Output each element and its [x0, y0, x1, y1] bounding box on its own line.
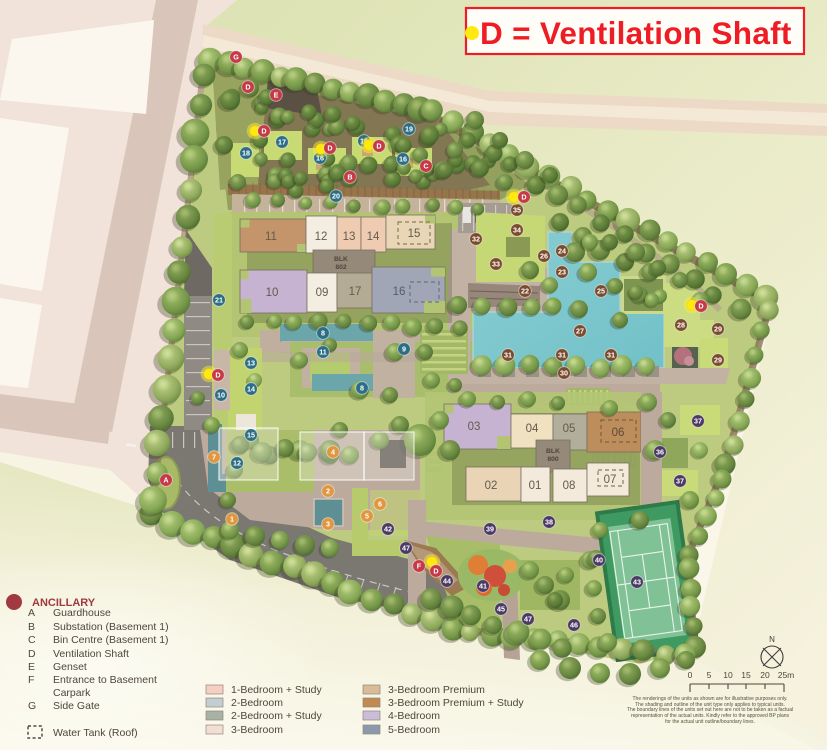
svg-text:35: 35 — [513, 206, 521, 215]
svg-text:26: 26 — [540, 252, 548, 261]
svg-text:07: 07 — [604, 474, 617, 486]
svg-text:Side Gate: Side Gate — [53, 700, 100, 712]
svg-text:Guardhouse: Guardhouse — [53, 607, 111, 619]
svg-text:Genset: Genset — [53, 661, 87, 673]
svg-text:30: 30 — [560, 369, 568, 378]
svg-text:F: F — [417, 562, 422, 571]
svg-text:23: 23 — [558, 268, 566, 277]
svg-text:42: 42 — [384, 525, 392, 534]
svg-text:7: 7 — [212, 453, 216, 462]
svg-text:D: D — [376, 142, 381, 151]
svg-text:12: 12 — [233, 459, 241, 468]
svg-text:9: 9 — [402, 345, 406, 354]
svg-text:3-Bedroom Premium + Study: 3-Bedroom Premium + Study — [388, 697, 524, 709]
svg-text:29: 29 — [714, 325, 722, 334]
svg-text:18: 18 — [242, 149, 250, 158]
svg-text:25m: 25m — [778, 670, 795, 680]
svg-text:10: 10 — [217, 391, 225, 400]
svg-text:D: D — [245, 83, 250, 92]
svg-text:8: 8 — [360, 384, 364, 393]
svg-text:1: 1 — [230, 515, 234, 524]
svg-text:1-Bedroom + Study: 1-Bedroom + Study — [231, 684, 323, 696]
svg-text:E: E — [274, 91, 279, 100]
svg-text:01: 01 — [529, 480, 542, 492]
svg-text:09: 09 — [316, 287, 329, 299]
svg-text:03: 03 — [468, 421, 481, 433]
svg-text:32: 32 — [472, 235, 480, 244]
svg-text:40: 40 — [595, 556, 603, 565]
svg-text:11: 11 — [265, 231, 277, 243]
svg-text:BLK: BLK — [546, 448, 560, 455]
svg-text:0: 0 — [688, 670, 693, 680]
svg-text:36: 36 — [656, 448, 664, 457]
svg-text:06: 06 — [612, 427, 625, 439]
svg-text:5-Bedroom: 5-Bedroom — [388, 724, 440, 736]
svg-text:20: 20 — [332, 192, 340, 201]
svg-text:45: 45 — [497, 605, 505, 614]
svg-text:31: 31 — [558, 351, 566, 360]
svg-text:27: 27 — [576, 327, 584, 336]
svg-text:A: A — [28, 607, 35, 619]
svg-text:Ventilation Shaft: Ventilation Shaft — [53, 648, 129, 660]
svg-text:38: 38 — [545, 518, 553, 527]
svg-text:04: 04 — [526, 423, 539, 435]
svg-text:A: A — [163, 476, 168, 485]
svg-text:C: C — [423, 162, 428, 171]
svg-text:15: 15 — [408, 228, 421, 240]
svg-text:47: 47 — [524, 615, 532, 624]
svg-text:C: C — [28, 634, 36, 646]
svg-text:31: 31 — [504, 351, 512, 360]
svg-text:17: 17 — [278, 138, 286, 147]
svg-text:2: 2 — [326, 487, 330, 496]
svg-text:3-Bedroom Premium: 3-Bedroom Premium — [388, 684, 485, 696]
svg-text:20: 20 — [760, 670, 770, 680]
svg-text:8: 8 — [321, 329, 325, 338]
svg-text:22: 22 — [521, 287, 529, 296]
svg-text:17: 17 — [349, 286, 362, 298]
svg-text:34: 34 — [513, 226, 521, 235]
svg-text:47: 47 — [402, 544, 410, 553]
svg-text:B: B — [28, 621, 35, 633]
svg-text:D = Ventilation Shaft: D = Ventilation Shaft — [480, 15, 792, 51]
svg-text:802: 802 — [335, 264, 347, 271]
svg-text:13: 13 — [247, 359, 255, 368]
svg-text:33: 33 — [492, 260, 500, 269]
svg-text:Bin Centre (Basement 1): Bin Centre (Basement 1) — [53, 634, 169, 646]
svg-text:Water Tank (Roof): Water Tank (Roof) — [53, 727, 138, 739]
svg-text:for the actual unit outline/bo: for the actual unit outline/boundary lin… — [665, 719, 755, 725]
svg-text:Entrance to Basement: Entrance to Basement — [53, 674, 157, 686]
svg-text:44: 44 — [443, 577, 451, 586]
svg-text:2-Bedroom: 2-Bedroom — [231, 697, 283, 709]
svg-text:3-Bedroom: 3-Bedroom — [231, 724, 283, 736]
svg-text:D: D — [28, 648, 36, 660]
svg-text:15: 15 — [247, 431, 255, 440]
svg-text:02: 02 — [485, 480, 498, 492]
svg-text:16: 16 — [393, 286, 406, 298]
svg-text:4-Bedroom: 4-Bedroom — [388, 710, 440, 722]
svg-text:14: 14 — [247, 385, 255, 394]
svg-text:F: F — [28, 674, 34, 686]
svg-text:3: 3 — [326, 520, 330, 529]
svg-text:11: 11 — [319, 348, 327, 357]
svg-text:31: 31 — [607, 351, 615, 360]
svg-text:43: 43 — [633, 578, 641, 587]
svg-text:24: 24 — [558, 247, 566, 256]
svg-text:21: 21 — [215, 296, 223, 305]
svg-text:37: 37 — [676, 477, 684, 486]
svg-text:46: 46 — [570, 621, 578, 630]
svg-text:N: N — [769, 635, 775, 644]
svg-text:D: D — [698, 302, 703, 311]
svg-text:10: 10 — [266, 287, 279, 299]
svg-text:08: 08 — [563, 480, 576, 492]
svg-text:15: 15 — [741, 670, 751, 680]
svg-text:D: D — [261, 127, 266, 136]
svg-text:5: 5 — [707, 670, 712, 680]
svg-text:G: G — [233, 53, 239, 62]
svg-text:B: B — [347, 173, 352, 182]
svg-text:D: D — [433, 567, 438, 576]
svg-text:19: 19 — [405, 125, 413, 134]
svg-text:2-Bedroom + Study: 2-Bedroom + Study — [231, 710, 323, 722]
svg-text:13: 13 — [343, 231, 356, 243]
svg-text:BLK: BLK — [334, 256, 348, 263]
svg-text:D: D — [327, 144, 332, 153]
svg-text:E: E — [28, 661, 35, 673]
svg-text:29: 29 — [714, 356, 722, 365]
svg-text:Carpark: Carpark — [53, 687, 91, 699]
svg-text:05: 05 — [563, 423, 576, 435]
svg-text:16: 16 — [399, 155, 407, 164]
svg-text:D: D — [521, 193, 526, 202]
svg-text:G: G — [28, 700, 36, 712]
svg-text:Substation (Basement 1): Substation (Basement 1) — [53, 621, 169, 633]
svg-text:14: 14 — [367, 231, 380, 243]
svg-text:800: 800 — [547, 456, 559, 463]
svg-text:41: 41 — [479, 582, 487, 591]
svg-text:10: 10 — [723, 670, 733, 680]
svg-text:12: 12 — [315, 231, 328, 243]
svg-text:4: 4 — [331, 448, 335, 457]
svg-text:25: 25 — [597, 287, 605, 296]
svg-text:28: 28 — [677, 321, 685, 330]
svg-text:5: 5 — [365, 512, 369, 521]
svg-text:6: 6 — [378, 500, 382, 509]
svg-text:D: D — [215, 371, 220, 380]
svg-text:39: 39 — [486, 525, 494, 534]
svg-text:37: 37 — [694, 417, 702, 426]
